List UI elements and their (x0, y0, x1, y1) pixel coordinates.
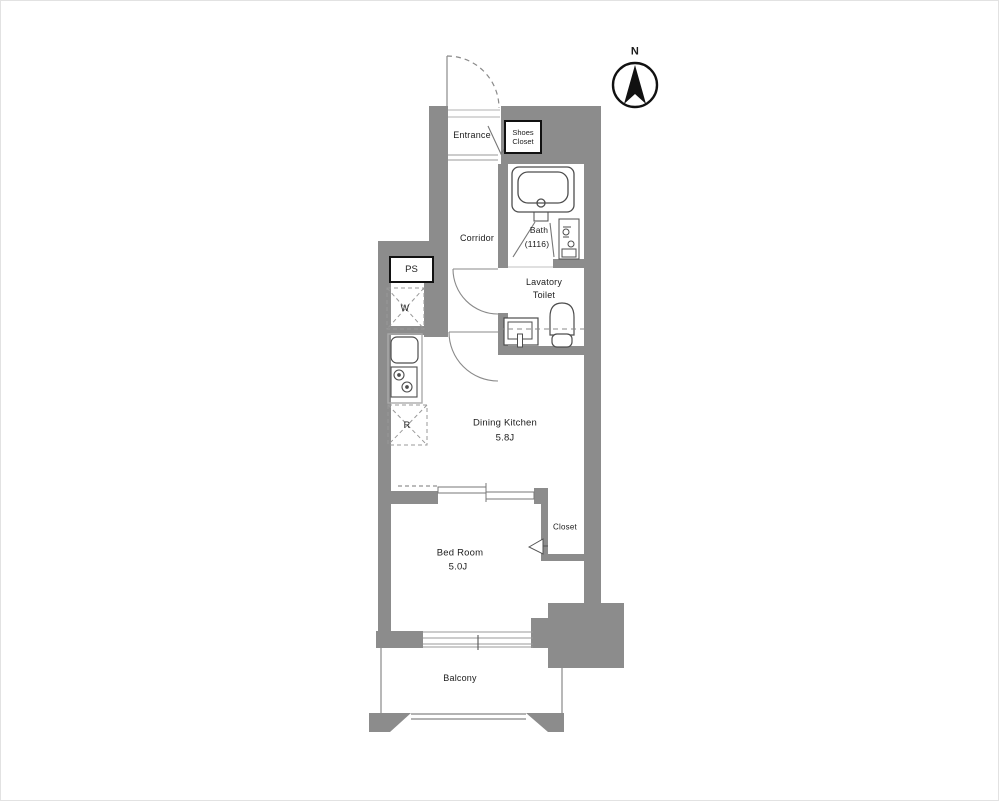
stove-icon (391, 367, 417, 397)
lavatory-door-arc (453, 269, 498, 314)
wall-corridor-bath (498, 164, 508, 268)
entrance-label: Entrance (453, 130, 491, 140)
wall-closet-bottom (541, 554, 599, 561)
floor-plan-canvas: Shoes Closet PS N Entrance Corridor Bath… (0, 0, 999, 801)
lavatory-label: Lavatory (526, 277, 562, 287)
wall-lavatory-bottom (498, 346, 584, 355)
corridor-label: Corridor (460, 233, 494, 243)
bath-label: Bath (530, 226, 548, 236)
shoes-closet-box: Shoes Closet (504, 120, 542, 154)
bedroom-label: Bed Room (437, 549, 483, 560)
kitchen-counter (388, 334, 422, 403)
washer-space-label: W (401, 303, 410, 313)
bedroom-size: 5.0J (449, 563, 468, 574)
dining-kitchen-label: Dining Kitchen (473, 419, 537, 430)
floorplan-linework (1, 1, 999, 802)
entrance-step-line (448, 155, 498, 160)
balcony-corner-right (526, 713, 564, 732)
wall-partition-left (378, 491, 438, 504)
wall-left-lower (378, 241, 391, 648)
balcony-label: Balcony (443, 673, 476, 683)
wall-step-block (531, 618, 548, 648)
entrance-door-arc (447, 56, 500, 117)
balcony-corner-left (369, 713, 411, 732)
bath-size-label: (1116) (525, 240, 550, 250)
kitchen-door-arc (449, 332, 498, 381)
lavatory-sink-icon (504, 318, 538, 347)
wall-bottom-right-block (548, 603, 624, 668)
wall-right (584, 106, 601, 604)
shoes-closet-label-1: Shoes (512, 128, 533, 137)
compass-icon (613, 63, 657, 107)
wall-bath-lavatory-stub (553, 259, 584, 268)
wall-closet-left (541, 498, 548, 559)
dining-kitchen-size: 5.8J (496, 434, 515, 445)
wall-washer-bottom (378, 326, 424, 335)
balcony-window-icon (423, 632, 533, 650)
pipe-space-label: PS (405, 264, 418, 275)
wall-bottom-left-corner (376, 631, 423, 648)
compass-north-label: N (631, 46, 639, 59)
shoes-closet-label-2: Closet (512, 137, 533, 146)
toilet-icon (550, 303, 574, 347)
pipe-space-box: PS (389, 256, 434, 283)
wall-left-upper (429, 106, 448, 259)
bathtub-icon (512, 167, 574, 221)
bath-washstand-icon (559, 219, 579, 259)
kitchen-sink-icon (391, 337, 418, 363)
toilet-label: Toilet (533, 290, 555, 300)
closet-label: Closet (553, 522, 577, 531)
fridge-space-label: R (404, 420, 411, 430)
balcony-outline (381, 648, 562, 719)
